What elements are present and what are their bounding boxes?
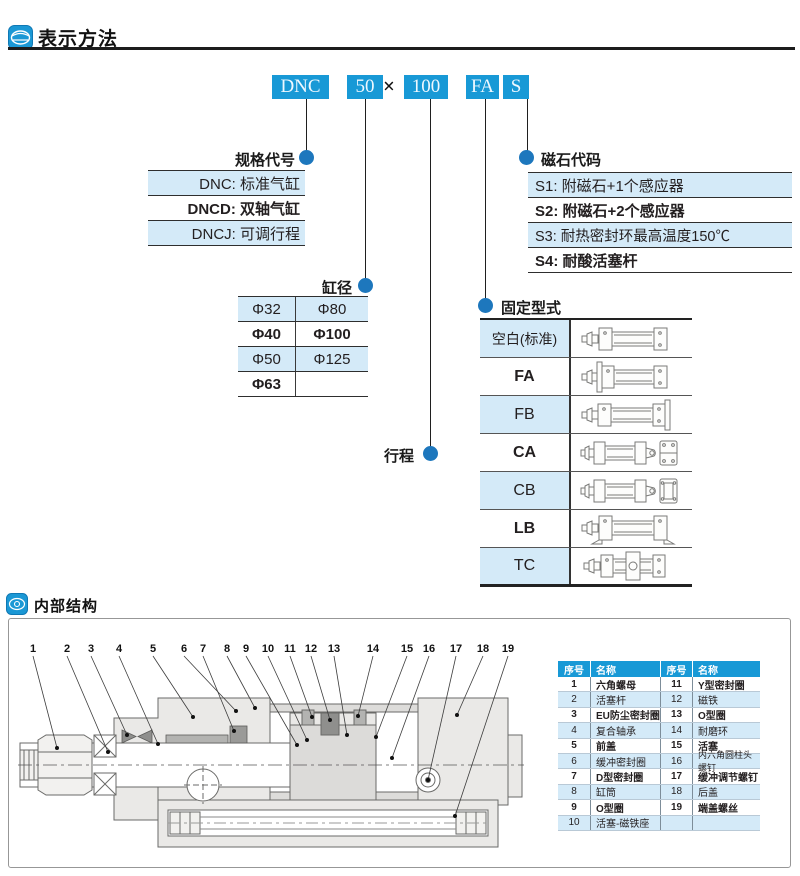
callout-number: 5 [150,643,156,655]
part-no: 8 [558,786,590,797]
code-box-stroke: 100 [404,75,448,99]
part-name: 六角螺母 [590,677,660,691]
bore-cell: Φ100 [296,326,368,343]
part-no: 14 [660,723,692,737]
bore-cell: Φ40 [238,322,296,346]
bore-row: Φ50 Φ125 [238,347,368,372]
wear-ring-shape [354,710,366,725]
part-name: 缓冲调节螺钉 [692,769,760,783]
part-no: 16 [660,754,692,768]
header-cell: 序号 [558,662,590,677]
part-name: 缸筒 [590,785,660,799]
bore-table: Φ32 Φ80 Φ40 Φ100 Φ50 Φ125 Φ63 [238,296,368,397]
mount-icon-fa [580,360,684,394]
mount-label: CA [480,434,571,471]
label-mounting: 固定型式 [501,297,561,318]
callout-numbers: 1 2 3 4 5 6 7 8 9 10 11 12 13 14 15 16 1… [30,643,514,655]
callout-number: 1 [30,643,36,655]
mount-label: CB [480,472,571,509]
mount-row-fa: FA [480,358,692,396]
mount-icon-lb [580,512,684,546]
section-title-structure: 内部结构 [34,595,98,616]
mount-row-ca: CA [480,434,692,472]
callout-number: 3 [88,643,94,655]
part-name: EU防尘密封圈 [590,708,660,722]
part-no: 17 [660,769,692,783]
label-bore: 缸径 [318,277,352,298]
mount-icon-ca [580,436,684,470]
part-name: O型圈 [692,708,760,722]
part-name: 缓冲密封圈 [590,754,660,768]
spec-code-table: DNC: 标准气缸 DNCD: 双轴气缸 DNCJ: 可调行程 [148,170,305,246]
parts-row: 6 缓冲密封圈 16 内六角圆柱头螺钉 [558,754,760,769]
cushion-seal-shape [230,726,247,743]
callout-number: 15 [401,643,413,655]
connector-stroke [430,99,431,447]
part-name: 活塞-磁铁座 [590,816,660,830]
parts-row: 4 复合轴承 14 耐磨环 [558,723,760,738]
magnet-code-table: S1: 附磁石+1个感应器 S2: 附磁石+2个感应器 S3: 耐热密封环最高温… [528,172,792,273]
header-cell: 序号 [660,661,692,677]
part-no: 6 [558,756,590,767]
connector-spec [306,99,307,151]
callout-number: 19 [502,643,514,655]
mount-icon-tc [580,549,684,583]
callout-number: 17 [450,643,462,655]
callout-number: 8 [224,643,230,655]
dot-mounting [478,298,493,313]
callout-number: 7 [200,643,206,655]
magnet-row: S2: 附磁石+2个感应器 [528,198,792,223]
part-name: O型圈 [590,800,660,814]
callout-number: 10 [262,643,274,655]
mount-row-tc: TC [480,548,692,586]
code-box-bore: 50 [347,75,383,99]
mount-label: 空白(标准) [480,320,571,357]
parts-row: 3 EU防尘密封圈 13 O型圈 [558,708,760,723]
callout-number: 14 [367,643,380,655]
part-no: 4 [558,725,590,736]
callout-number: 2 [64,643,70,655]
end-plate-shape [508,735,522,797]
parts-row: 2 活塞杆 12 磁铁 [558,692,760,707]
callout-number: 4 [116,643,123,655]
parts-row: 8 缸筒 18 后盖 [558,785,760,800]
header-cell: 名称 [590,661,660,677]
callout-number: 11 [284,643,296,655]
part-no: 10 [558,817,590,828]
mount-row-fb: FB [480,396,692,434]
parts-row: 9 O型圈 19 端盖螺丝 [558,800,760,815]
callout-number: 12 [305,643,317,655]
spec-row: DNC: 标准气缸 [148,171,305,196]
part-name: 后盖 [692,785,760,799]
connector-mounting [485,99,486,299]
part-name: 前盖 [590,739,660,753]
mounting-table: 空白(标准) FA [480,318,692,587]
label-stroke: 行程 [384,445,414,466]
bore-cell: Φ32 [238,297,296,321]
part-no: 5 [558,740,590,751]
part-no: 13 [660,708,692,722]
bore-cell: Φ125 [296,351,368,368]
part-no: 19 [660,800,692,814]
connector-bore [365,99,366,279]
part-name: 耐磨环 [692,723,760,737]
bore-row: Φ63 [238,372,368,397]
part-name: 磁铁 [692,692,760,706]
part-name: 内六角圆柱头螺钉 [692,754,760,768]
dot-stroke [423,446,438,461]
code-box-magnet: S [503,75,529,99]
part-name: 复合轴承 [590,723,660,737]
part-no: 1 [558,679,590,690]
part-name: 活塞杆 [590,692,660,706]
header-rule [8,47,795,50]
mount-row-lb: LB [480,510,692,548]
part-no: 3 [558,709,590,720]
code-box-model: DNC [272,75,329,99]
bushing-shape [166,735,228,743]
magnet-row: S1: 附磁石+1个感应器 [528,173,792,198]
dot-magnet [519,150,534,165]
mount-row-cb: CB [480,472,692,510]
catalog-page: 表示方法 DNC 50 × 100 FA S 规格代号 磁石代码 缸径 行程 固… [0,0,800,876]
mount-label: LB [480,510,571,547]
bore-row: Φ32 Φ80 [238,297,368,322]
bore-cell: Φ80 [296,301,368,318]
multiply-sign: × [383,74,395,99]
code-box-mounting: FA [466,75,499,99]
dot-spec [299,150,314,165]
mount-label: FB [480,396,571,433]
callout-number: 6 [181,643,187,655]
callout-number: 16 [423,643,435,655]
parts-table: 序号 名称 序号 名称 1 六角螺母 11 Y型密封圈 2 活塞杆 12 磁铁 … [558,661,760,831]
mount-row-blank: 空白(标准) [480,320,692,358]
parts-row: 10 活塞-磁铁座 [558,816,760,831]
mount-label: FA [480,358,571,395]
part-no: 11 [660,677,692,691]
section-icon [6,593,28,615]
piston-shape [290,725,376,800]
part-name: 端盖螺丝 [692,800,760,814]
callout-number: 18 [477,643,489,655]
part-no [660,816,692,830]
parts-table-header: 序号 名称 序号 名称 [558,661,760,677]
cylinder-cross-section: 1 2 3 4 5 6 7 8 9 10 11 12 13 14 15 16 1… [18,640,548,858]
magnet-row: S4: 耐酸活塞杆 [528,248,792,273]
part-no: 15 [660,739,692,753]
parts-row: 7 D型密封圈 17 缓冲调节螺钉 [558,769,760,784]
part-no: 18 [660,785,692,799]
part-name: D型密封圈 [590,769,660,783]
label-spec-code: 规格代号 [215,149,295,170]
mount-icon-cb [580,474,684,508]
bore-row: Φ40 Φ100 [238,322,368,347]
parts-row: 1 六角螺母 11 Y型密封圈 [558,677,760,692]
mount-icon-blank [580,322,684,356]
callout-number: 13 [328,643,340,655]
mount-icon-fb [580,398,684,432]
header-cell: 名称 [692,661,760,677]
part-no: 12 [660,692,692,706]
magnet-shape [321,713,339,735]
dot-bore [358,278,373,293]
part-name [692,816,760,830]
spec-row: DNCD: 双轴气缸 [148,196,305,221]
part-no: 2 [558,694,590,705]
part-name: Y型密封圈 [692,677,760,691]
part-no: 7 [558,771,590,782]
bore-cell: Φ63 [238,372,296,396]
label-magnet-code: 磁石代码 [541,149,601,170]
spec-row: DNCJ: 可调行程 [148,221,305,246]
mount-label: TC [480,548,571,584]
connector-magnet [527,99,528,151]
magnet-row: S3: 耐热密封环最高温度150℃ [528,223,792,248]
callout-number: 9 [243,643,249,655]
part-no: 9 [558,802,590,813]
bore-cell: Φ50 [238,347,296,371]
